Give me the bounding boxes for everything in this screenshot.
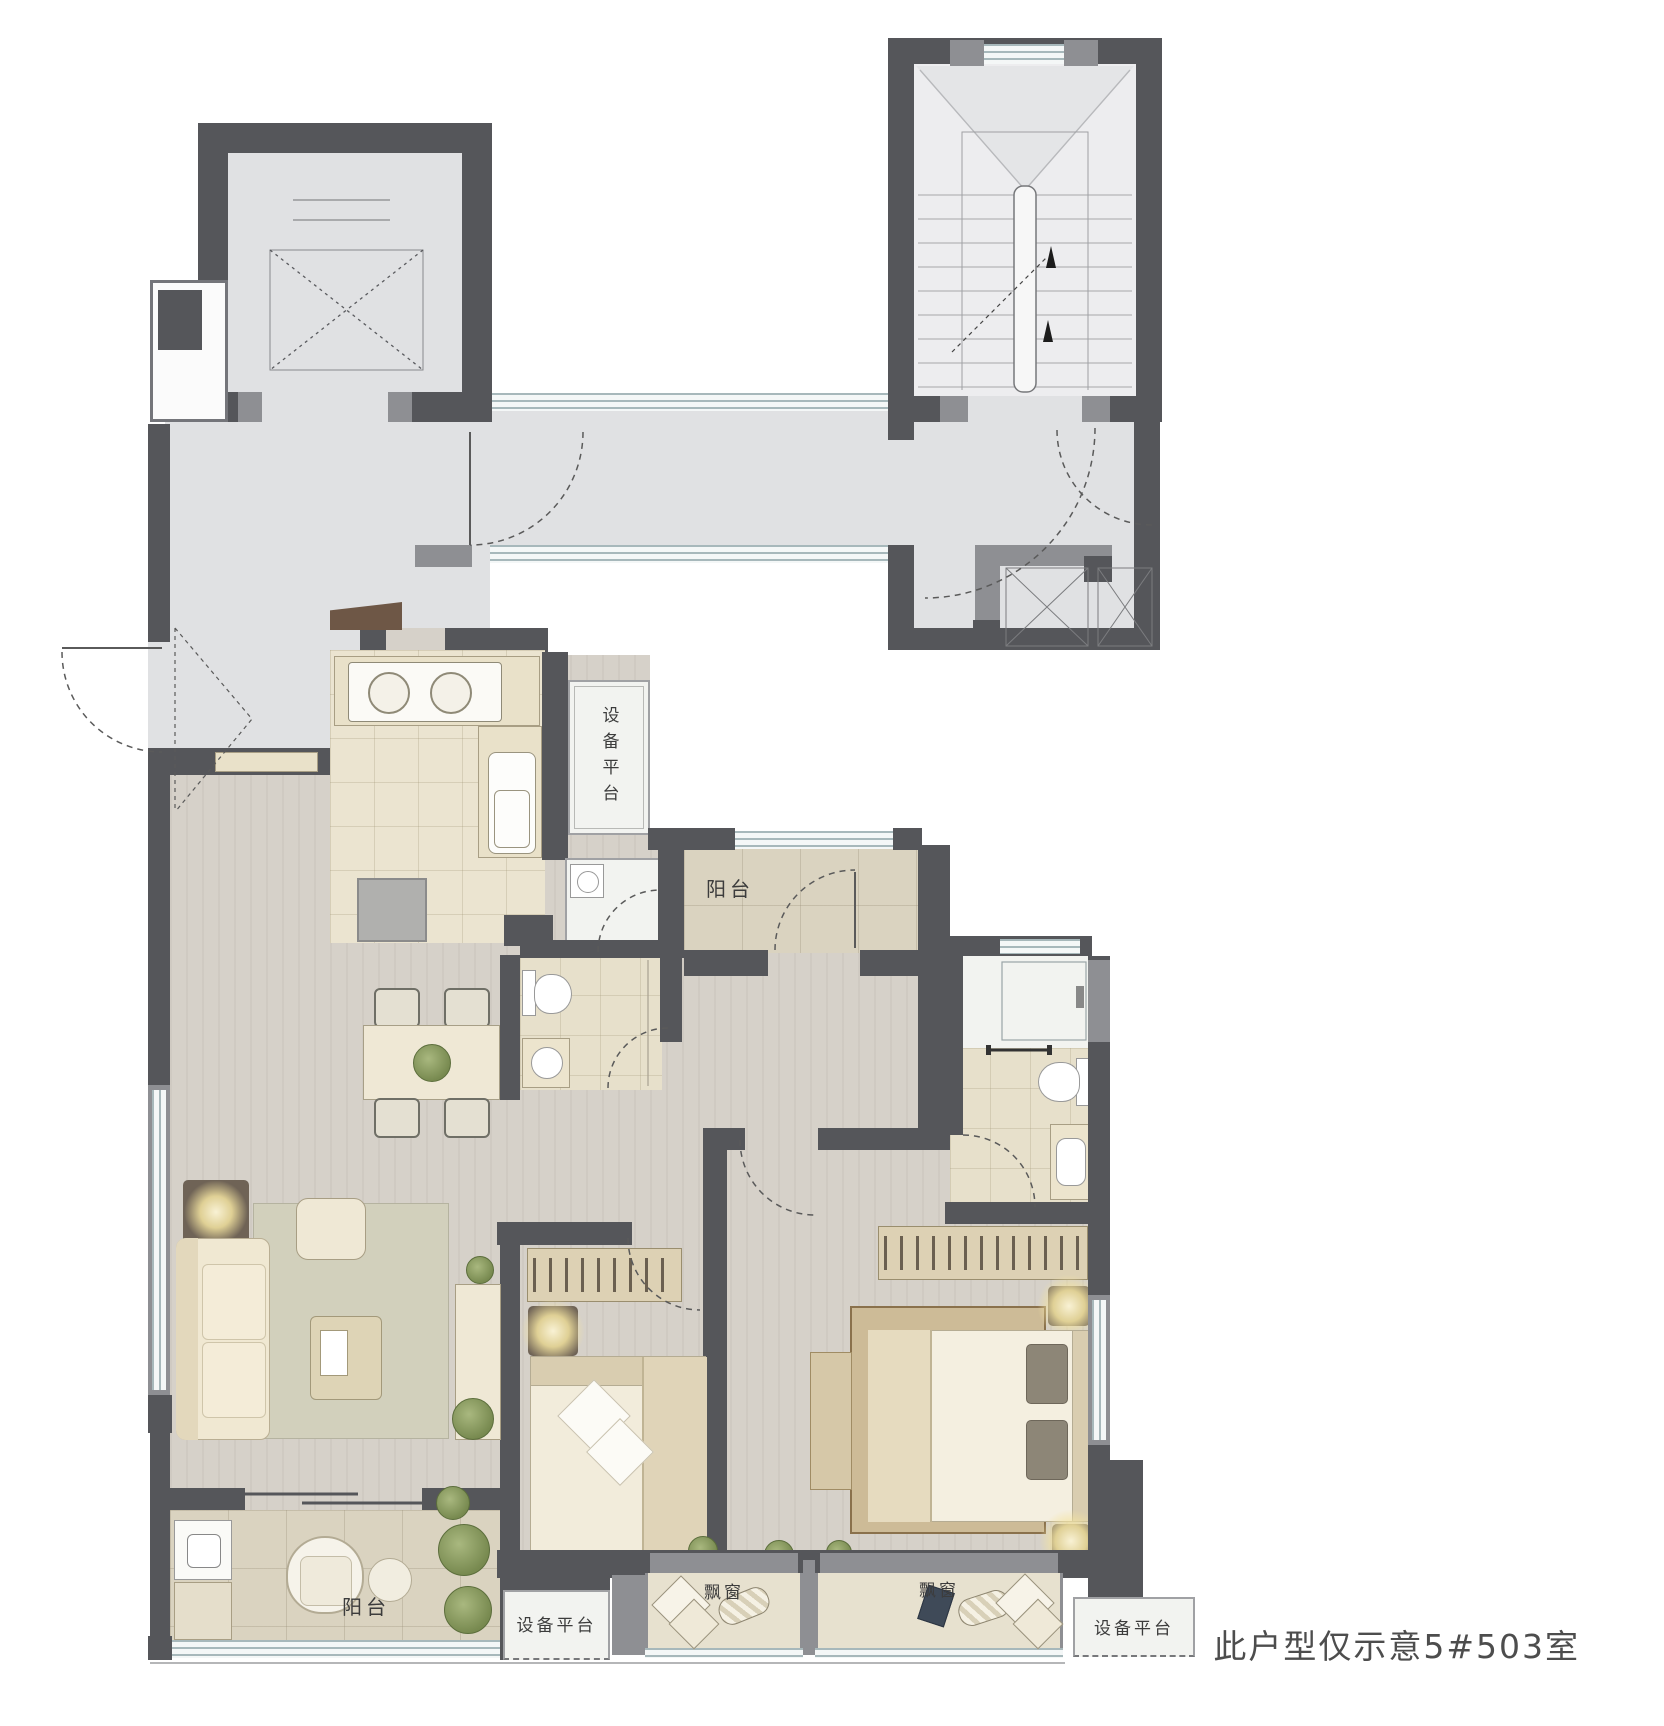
wall-segment (703, 1128, 745, 1150)
sofa-cushion (202, 1264, 266, 1340)
wall-segment (542, 652, 568, 860)
wall-cap (148, 1636, 172, 1660)
wall-segment (684, 950, 768, 976)
duct-box (158, 290, 202, 350)
shoe-cabinet (215, 752, 318, 772)
wall-segment (658, 845, 684, 958)
dining-chair (374, 988, 420, 1028)
wall-segment (818, 1128, 950, 1150)
living-west-window (152, 1090, 166, 1390)
unit-note: 此户型仅示意5#503室 (1150, 1620, 1580, 1664)
balcony-cabinet (174, 1582, 232, 1640)
plant (436, 1486, 470, 1520)
nightstand-lamp (528, 1306, 578, 1356)
washer-drum (577, 871, 599, 893)
wall-segment (1084, 556, 1112, 582)
corridor-north-window (490, 393, 900, 411)
wall-cap (940, 396, 968, 422)
vestibule-interior (914, 422, 1134, 628)
balcony-bottom-label: 阳台 (328, 1592, 404, 1618)
wall-segment (1088, 1460, 1143, 1600)
wall-cap (950, 40, 984, 68)
dining-chair (444, 1098, 490, 1138)
corridor-south-window (490, 545, 900, 563)
wall-segment (520, 940, 662, 958)
floor-lamp (183, 1180, 249, 1244)
dining-centerpiece-plant (413, 1044, 451, 1082)
wall-segment (975, 566, 1000, 628)
plant (438, 1524, 490, 1576)
master-bed-blanket (868, 1330, 932, 1522)
bedroom-bench (810, 1352, 852, 1490)
dining-chair (374, 1098, 420, 1138)
wall-segment (497, 1222, 632, 1245)
side-table (296, 1198, 366, 1260)
fridge (357, 878, 427, 942)
vestibule-passage (888, 440, 914, 545)
wall-segment (500, 955, 520, 1100)
wall-cap (415, 545, 472, 567)
equipment-platform-bottom-left-label: 设备平台 (503, 1592, 610, 1654)
bay-window-left-label: 飘窗 (645, 1578, 803, 1602)
corridor (490, 410, 900, 545)
plant (444, 1586, 492, 1634)
balcony-bottom-window (152, 1640, 500, 1658)
master-bed-pillow (1026, 1420, 1068, 1480)
wall-segment (148, 1395, 172, 1433)
toilet-bowl (534, 974, 572, 1014)
master-east-window (1092, 1300, 1106, 1440)
stair-door-opening (968, 396, 1082, 422)
elevator-door-jamb (238, 392, 262, 422)
master-toilet-bowl (1038, 1062, 1080, 1102)
stove-burner (368, 672, 410, 714)
bath-sink (531, 1047, 563, 1079)
wall-segment (148, 424, 170, 642)
balcony-top-label: 阳台 (692, 874, 768, 900)
exterior-gap-above-master-bath (945, 845, 1092, 940)
master-bath-sink (1056, 1138, 1086, 1186)
master-bed-pillow (1026, 1344, 1068, 1404)
wall-segment (945, 1202, 1090, 1224)
floor-plan: 设备平台 阳台 阳台 飘窗 飘窗 设备平台 设备平台 此户型仅示意5#503室 (0, 0, 1664, 1726)
elevator-door-jamb (388, 392, 412, 422)
bay-window-divider (803, 1560, 815, 1655)
balcony-sink (187, 1534, 221, 1568)
wall-segment (170, 1488, 245, 1510)
master-bath-shower-floor (950, 956, 1090, 1048)
master-bath-window (1000, 939, 1080, 954)
wall-segment (150, 1430, 170, 1648)
plant (452, 1398, 494, 1440)
exterior-gap-above-balcony (650, 648, 1170, 847)
wardrobe-hangers (533, 1258, 676, 1292)
elevator-lobby (165, 400, 490, 662)
stove-burner (430, 672, 472, 714)
exterior-line (150, 1662, 1065, 1664)
dining-chair (444, 988, 490, 1028)
bay-window-glass (645, 1648, 803, 1658)
wall-segment (1088, 960, 1110, 1042)
wall-segment (648, 828, 735, 850)
wall-segment (973, 620, 1000, 650)
stairwell-interior (914, 64, 1136, 396)
wall-segment (945, 956, 963, 1135)
nightstand-lamp (1048, 1286, 1090, 1326)
bay-window-sill (820, 1553, 1058, 1575)
wall-segment (612, 1575, 645, 1655)
plant (466, 1256, 494, 1284)
kitchen-sink-basin (494, 790, 530, 848)
coffee-table-tray (320, 1330, 348, 1376)
bay-window-sill (650, 1553, 798, 1575)
stairwell-top-window (984, 44, 1064, 64)
wall-cap (1064, 40, 1098, 68)
bay-window-glass (815, 1648, 1063, 1658)
master-wardrobe-hangers (884, 1236, 1082, 1270)
elevator-door-opening (262, 392, 388, 422)
sofa-back (176, 1238, 198, 1440)
sofa-cushion (202, 1342, 266, 1418)
lobby-west-strip (148, 640, 165, 750)
balcony-top-window (735, 831, 893, 849)
wall-segment (660, 955, 682, 1042)
bay-window-right-label: 飘窗 (815, 1576, 1063, 1600)
equipment-platform-top-label: 设备平台 (568, 688, 650, 828)
wall-cap (1082, 396, 1110, 422)
wall-segment (148, 748, 170, 1088)
elevator-shaft-interior (228, 153, 462, 392)
